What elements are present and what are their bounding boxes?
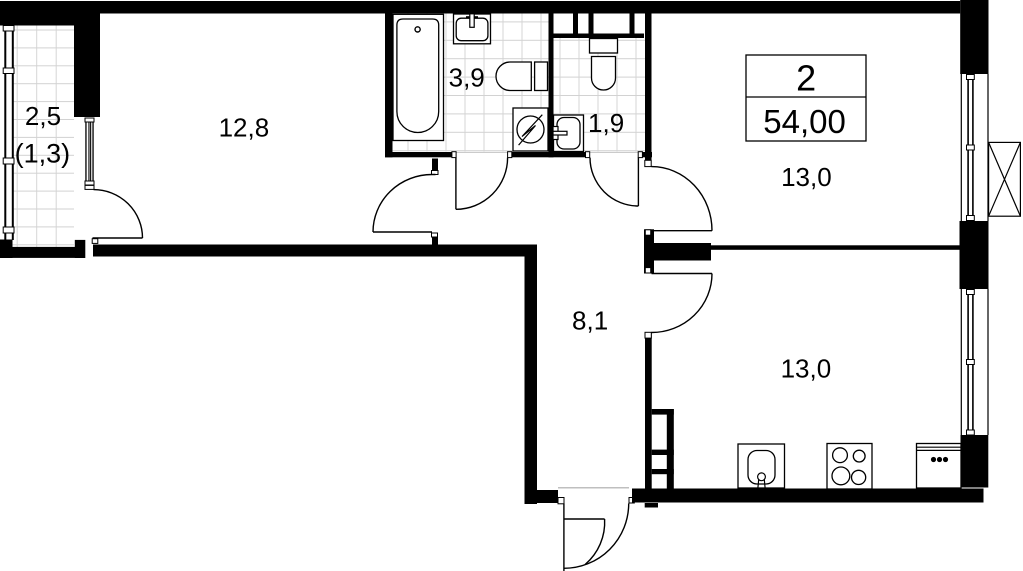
svg-text:12,8: 12,8 — [219, 113, 270, 143]
svg-text:8,1: 8,1 — [572, 305, 608, 335]
svg-text:3,9: 3,9 — [449, 63, 485, 93]
svg-text:13,0: 13,0 — [781, 354, 832, 384]
svg-text:2,5: 2,5 — [25, 101, 61, 131]
svg-text:2: 2 — [796, 57, 816, 98]
svg-text:(1,3): (1,3) — [15, 139, 71, 169]
svg-text:1,9: 1,9 — [588, 108, 624, 138]
svg-text:54,00: 54,00 — [763, 103, 846, 140]
svg-text:13,0: 13,0 — [781, 162, 832, 192]
